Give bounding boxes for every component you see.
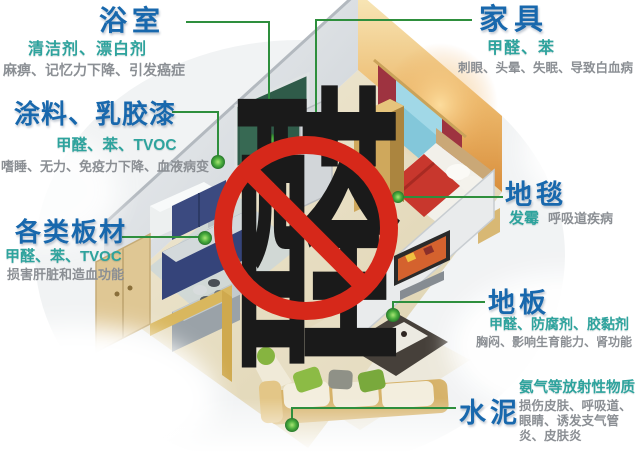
- infographic: 醛 浴室 清洁剂、漂白剂 麻痹、记忆力下降、引发癌症 家具 甲醛、苯 刺眼、头晕…: [0, 0, 640, 453]
- callout-carpet-pollutants: 发霉: [509, 211, 539, 228]
- door-post: [222, 290, 232, 382]
- callout-dot-paint: [211, 155, 225, 169]
- callout-floor-effects: 胸闷、影响生育能力、肾功能: [476, 336, 632, 350]
- callout-carpet-title: 地毯: [505, 181, 567, 209]
- callout-dot-boards: [198, 231, 212, 245]
- callout-carpet-effects: 呼吸道疾病: [548, 212, 613, 227]
- callout-paint-effects: 嗜睡、无力、免疫力下降、血液病变: [1, 160, 209, 175]
- callout-furniture-effects: 刺眼、头晕、失眠、导致白血病: [458, 61, 633, 75]
- callout-bathroom-effects: 麻痹、记忆力下降、引发癌症: [3, 62, 185, 78]
- callout-dot-cement: [285, 418, 299, 432]
- prohibition-sign: 醛: [223, 65, 400, 413]
- bowl-2: [401, 331, 407, 337]
- callout-bathroom-pollutants: 清洁剂、漂白剂: [28, 41, 147, 59]
- cabinet-handle-2: [128, 286, 133, 291]
- callout-paint-pollutants: 甲醛、苯、TVOC: [56, 137, 177, 154]
- pot: [208, 279, 220, 287]
- kettle: [193, 285, 207, 295]
- callout-cement-pollutants: 氨气等放射性物质: [519, 381, 635, 397]
- callout-boards-effects: 损害肝脏和造血功能: [7, 268, 124, 283]
- callout-bathroom-title: 浴室: [99, 6, 165, 35]
- callout-paint-title: 涂料、乳胶漆: [14, 101, 176, 128]
- callout-furniture-title: 家具: [479, 5, 549, 35]
- callout-cement-title: 水泥: [459, 399, 521, 427]
- callout-floor-pollutants: 甲醛、防腐剂、胶黏剂: [489, 317, 629, 332]
- callout-boards-title: 各类板材: [15, 219, 127, 246]
- callout-cement-effects: 损伤皮肤、呼吸道、眼睛、诱发支气管炎、皮肤炎: [519, 399, 640, 444]
- callout-boards-pollutants: 甲醛、苯、TVOC: [5, 249, 122, 266]
- callout-floor-title: 地板: [488, 289, 550, 317]
- callout-furniture-pollutants: 甲醛、苯: [487, 40, 555, 58]
- cabinet-handle-1: [115, 292, 120, 297]
